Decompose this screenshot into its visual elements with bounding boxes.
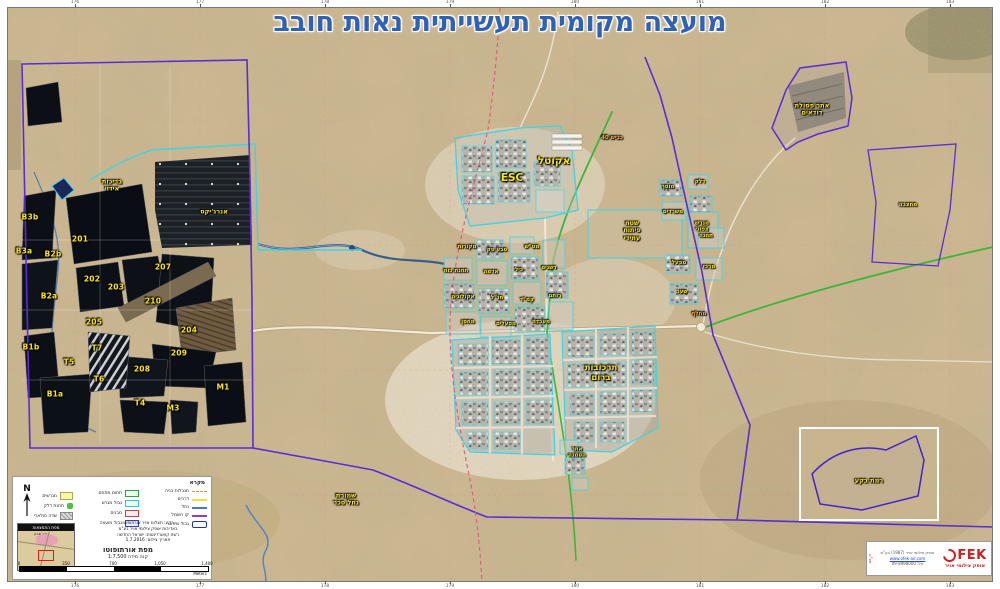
coordinate-ticks-bottom: 176177178179180181182183 bbox=[0, 582, 1000, 589]
locator-title: מפת התמצאות bbox=[18, 524, 74, 531]
tick-number: 180 bbox=[571, 584, 580, 589]
legend-item: שדה סולארי bbox=[17, 512, 73, 520]
map-type-title: מפת אורתופוטו bbox=[69, 546, 187, 554]
tick-mark bbox=[950, 581, 951, 584]
credit-line: טל: 09-8998000 bbox=[878, 561, 937, 567]
ofek-logo: FEK אופק צילומי אויר bbox=[939, 549, 991, 569]
frame-left bbox=[0, 0, 7, 589]
legend-item: דרכים bbox=[143, 497, 207, 502]
building-swatch bbox=[125, 510, 139, 517]
tick-mark bbox=[575, 581, 576, 584]
power-line-swatch bbox=[192, 515, 207, 517]
road-line-swatch bbox=[192, 499, 207, 501]
lots-swatch bbox=[60, 492, 73, 500]
map-notes: רקע: תצלום אויר אורתופוטו באדיבות אופק צ… bbox=[89, 521, 207, 544]
coordinate-ticks-top: 176177178179180181182183 bbox=[0, 0, 1000, 7]
credit-line: אופק צילומי אויר (1987) בע"מ bbox=[878, 550, 937, 556]
tick-mark bbox=[75, 4, 76, 7]
tick-mark bbox=[200, 581, 201, 584]
legend-item-label: קו חשמל bbox=[171, 513, 189, 518]
legend-item-label: תחנת דלק bbox=[44, 504, 64, 509]
tick-mark bbox=[825, 581, 826, 584]
legend-item: קו חשמל bbox=[143, 513, 207, 518]
compound-swatch bbox=[125, 490, 139, 497]
legend-item: נחל bbox=[143, 505, 207, 510]
tick-mark bbox=[450, 581, 451, 584]
solar-field-swatch bbox=[60, 512, 73, 520]
legend-item-label: מגבלות בניה bbox=[165, 489, 189, 494]
locator-extent-rectangle bbox=[38, 550, 54, 561]
tick-number: 182 bbox=[821, 584, 830, 589]
legend-panel: N מקרא מגבלות בניה דרכים נחל קו חשמל גבו… bbox=[12, 476, 212, 580]
legend-item-label: דרכים bbox=[178, 497, 189, 502]
legend-item-label: תחום מתחם bbox=[99, 491, 122, 496]
tick-mark bbox=[450, 4, 451, 7]
legend-area-items: מגרשים תחנת דלק שדה סולארי bbox=[17, 492, 73, 520]
legend-item: מגרשים bbox=[17, 492, 73, 500]
tick-mark bbox=[825, 4, 826, 7]
stream-line-swatch bbox=[192, 507, 207, 509]
tick-number: 176 bbox=[71, 584, 80, 589]
fuel-station-swatch bbox=[67, 503, 73, 509]
tick-mark bbox=[325, 4, 326, 7]
legend-item: תחום מתחם bbox=[77, 490, 139, 497]
legend-item: מבנים bbox=[77, 510, 139, 517]
legend-item-label: גבול מגרש bbox=[102, 501, 122, 506]
tick-mark bbox=[700, 581, 701, 584]
legend-item-label: מבנים bbox=[111, 511, 122, 516]
tick-number: 183 bbox=[946, 584, 955, 589]
tick-mark bbox=[325, 581, 326, 584]
publisher-credit-box: תצ"א אופק צילומי אויר (1987) בע"מ www.of… bbox=[866, 541, 992, 576]
legend-item-label: מגרשים bbox=[42, 494, 57, 499]
industrial-north-zone bbox=[455, 126, 582, 226]
tick-mark bbox=[575, 4, 576, 7]
tick-number: 181 bbox=[696, 584, 705, 589]
legend-item: מגבלות בניה bbox=[143, 489, 207, 494]
legend-item: גבול מגרש bbox=[77, 500, 139, 507]
legend-title: מקרא bbox=[190, 480, 205, 486]
frame-right bbox=[993, 0, 1000, 589]
orthophoto-map-sheet: B3bB3aB2bB2aB1bB1a2012022032052102072042… bbox=[0, 0, 1000, 589]
tick-mark bbox=[200, 4, 201, 7]
plot-swatch bbox=[125, 500, 139, 507]
tick-mark bbox=[700, 4, 701, 7]
tick-mark bbox=[950, 4, 951, 7]
scalebar-unit: Meters bbox=[193, 571, 207, 576]
inset-detail-box bbox=[800, 428, 938, 520]
legend-item-label: נחל bbox=[182, 505, 189, 510]
ofek-o-icon bbox=[941, 546, 959, 564]
ofek-tagline: אופק צילומי אויר bbox=[939, 563, 991, 569]
note-line: תאריך צילום: 1.7.2016 bbox=[89, 538, 207, 544]
tick-number: 179 bbox=[446, 584, 455, 589]
tick-number: 177 bbox=[196, 584, 205, 589]
credit-contact-lines: אופק צילומי אויר (1987) בע"מ www.ofek-ai… bbox=[874, 548, 939, 569]
scale-bar bbox=[19, 566, 209, 572]
scale-ratio-text: קנה מידה 1:7,500 bbox=[69, 555, 187, 560]
dashed-line-swatch bbox=[192, 491, 207, 492]
tick-mark bbox=[75, 581, 76, 584]
legend-item: תחנת דלק bbox=[17, 503, 73, 509]
credit-vertical-text: תצ"א bbox=[867, 553, 874, 565]
page-title: מועצה מקומית תעשייתית נאות חובב bbox=[273, 7, 726, 38]
ofek-logo-text: FEK bbox=[957, 549, 986, 562]
tick-number: 178 bbox=[321, 584, 330, 589]
legend-item-label: שדה סולארי bbox=[34, 514, 57, 519]
